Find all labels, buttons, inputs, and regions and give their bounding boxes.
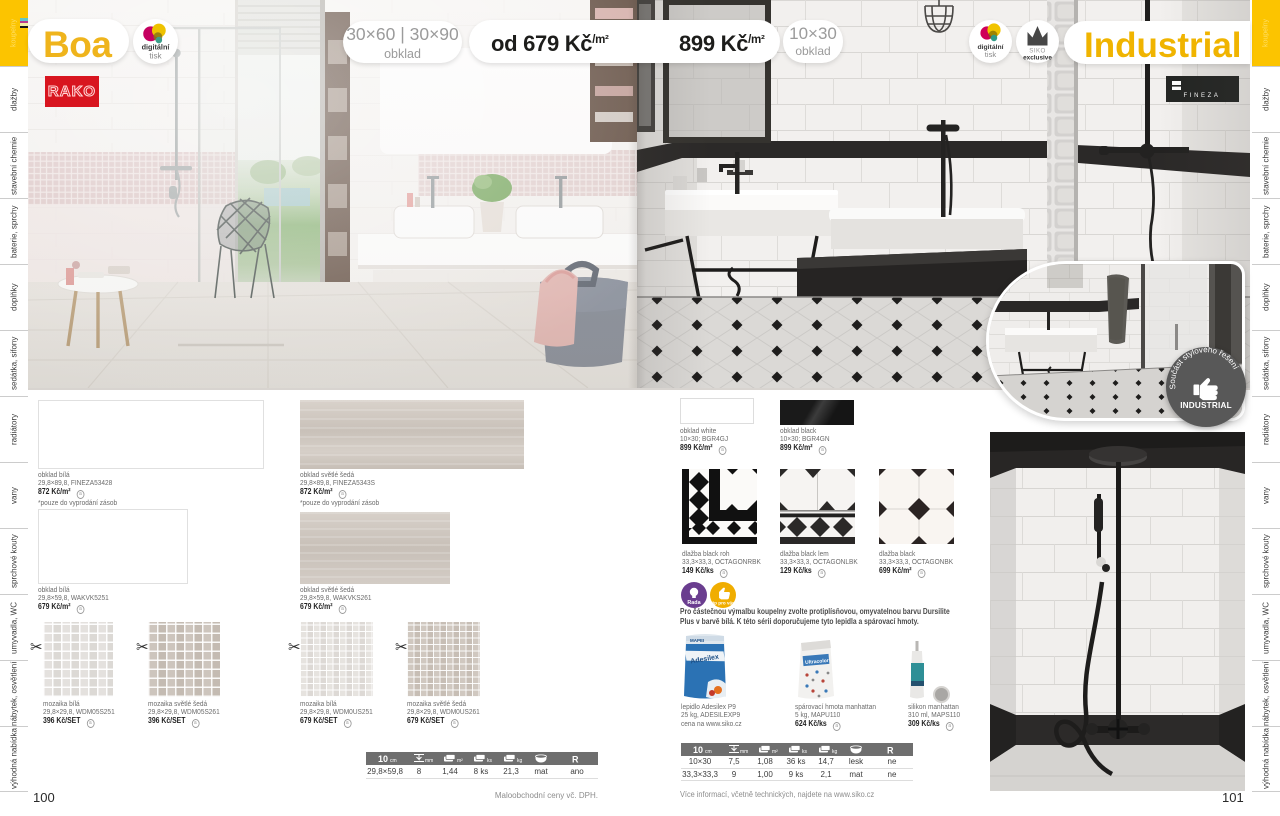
svg-text:ks: ks <box>802 749 808 755</box>
svg-text:R: R <box>572 755 579 765</box>
svg-text:SIKO: SIKO <box>1029 48 1045 55</box>
svg-text:INDUSTRIAL: INDUSTRIAL <box>1180 401 1232 410</box>
svg-text:10: 10 <box>693 745 703 755</box>
svg-text:exclusive: exclusive <box>1023 55 1052 62</box>
svg-text:R: R <box>887 746 894 756</box>
svg-text:m²: m² <box>457 758 463 764</box>
svg-text:MAPEI: MAPEI <box>690 638 704 643</box>
svg-text:10: 10 <box>378 754 388 764</box>
svg-text:kg: kg <box>832 749 838 755</box>
svg-text:cm: cm <box>390 758 397 764</box>
svg-text:tisk: tisk <box>985 50 997 59</box>
svg-text:ks: ks <box>487 758 493 764</box>
svg-text:mm: mm <box>740 749 748 755</box>
svg-text:kg: kg <box>517 758 523 764</box>
svg-text:cm: cm <box>705 749 712 755</box>
svg-text:Rada: Rada <box>687 600 701 606</box>
svg-text:tisk: tisk <box>149 51 162 60</box>
svg-text:mm: mm <box>425 758 433 764</box>
svg-text:digitální: digitální <box>142 43 171 52</box>
svg-text:tip pro vás: tip pro vás <box>711 601 735 606</box>
svg-text:m²: m² <box>772 749 778 755</box>
